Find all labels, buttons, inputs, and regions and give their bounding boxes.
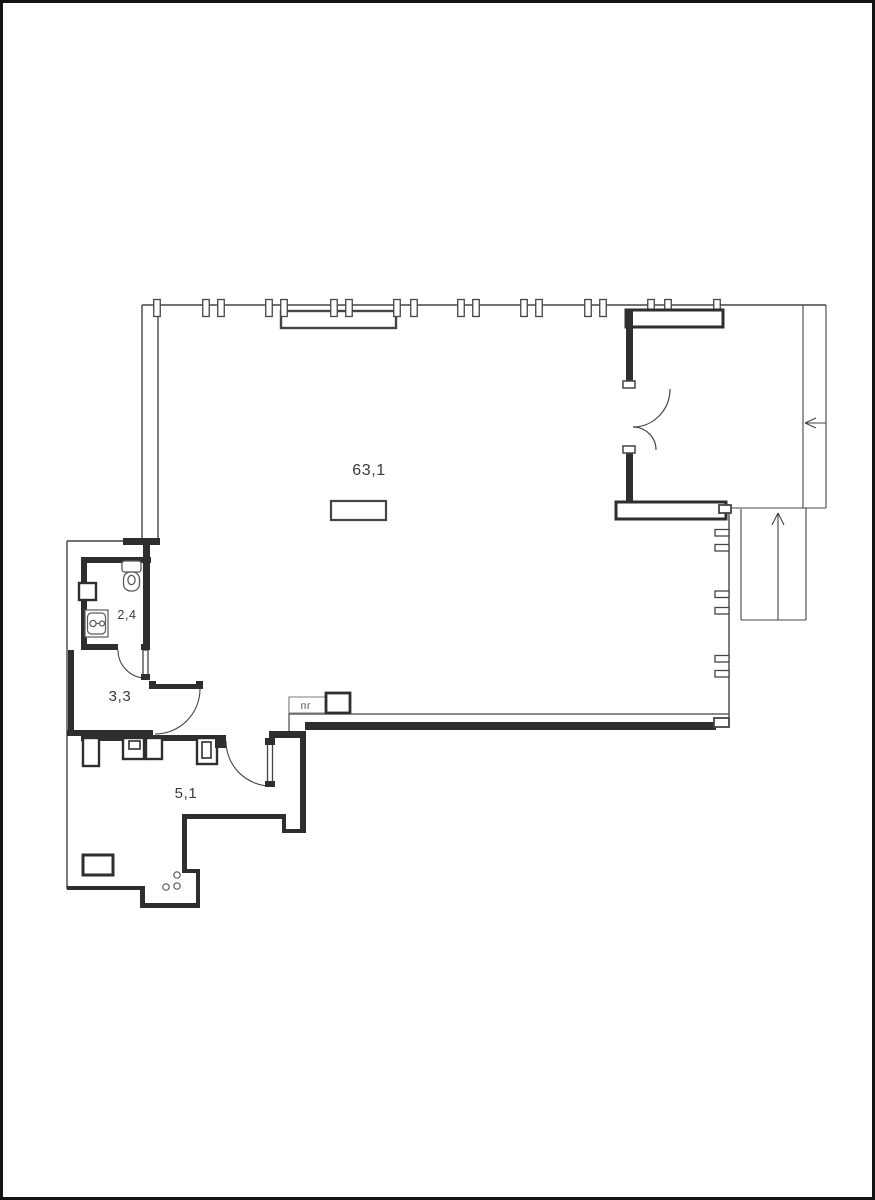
porch-bottom-wall [140, 903, 200, 908]
door-frame-tick [265, 738, 275, 745]
mullion-tick [411, 300, 418, 317]
area-label-bathroom: 2,4 [117, 608, 136, 622]
hall-left-wall [68, 650, 74, 736]
porch-markers [163, 872, 180, 890]
left-arrow-icon [805, 418, 826, 428]
marker-circle [174, 872, 180, 878]
floor-plan-canvas: пг 2,4 [0, 0, 875, 1200]
radiator-tick [715, 591, 729, 598]
toilet-icon [122, 561, 141, 591]
mullion-tick [203, 300, 210, 317]
entry-step-wall-h [282, 829, 306, 833]
mullion-tick [394, 300, 401, 317]
bottom-bar-end-tick [719, 505, 731, 513]
mullion-tick [346, 300, 353, 317]
terrace-door-swing-arc-1 [633, 389, 670, 427]
mullion-tick [536, 300, 543, 317]
main-left-closing-wall [123, 538, 160, 545]
mullion-tick [266, 300, 273, 317]
lower-jamb-cap [623, 446, 635, 453]
bathroom: 2,4 [67, 538, 160, 889]
bathroom-door-leaf [143, 650, 148, 676]
upper-jamb-cap [623, 381, 635, 388]
mullion-tick [600, 300, 607, 317]
entry-door-swing-arc [226, 741, 271, 786]
radiator-tick [715, 530, 729, 537]
porch-wall [67, 886, 145, 890]
closet-niche [83, 738, 99, 766]
door-frame-tick [196, 681, 203, 689]
toilet-bowl-inner [128, 575, 135, 584]
entry-right-wall [300, 731, 306, 833]
balcony [741, 508, 806, 620]
mullion-tick [585, 300, 592, 317]
door-frame-tick [141, 674, 150, 680]
vent-shaft-square [326, 693, 350, 713]
entry-left-wall [182, 818, 187, 873]
door-frame-tick [149, 681, 156, 689]
hall-door-swing-arc [155, 689, 200, 734]
closet-niche-slot [129, 741, 140, 749]
porch-niche [83, 855, 113, 875]
radiator-ticks [715, 530, 729, 678]
area-label-entry-hall: 5,1 [175, 785, 198, 802]
mullion-tick [521, 300, 528, 317]
terrace-door-assembly [616, 310, 731, 519]
bathroom-right-wall [143, 541, 150, 648]
mullion-tick [154, 300, 161, 317]
marker-circle [163, 884, 169, 890]
radiator-tick [715, 608, 729, 615]
bathroom-vent-niche [79, 583, 96, 600]
terrace-door-upper-jamb [626, 310, 633, 387]
porch-wall [140, 888, 145, 908]
bathroom-bottom-wall [81, 644, 118, 650]
mullion-tick [218, 300, 225, 317]
sink-drain [90, 620, 96, 626]
mullion-tick [331, 300, 338, 317]
mullion-tick [473, 300, 480, 317]
corridor-wall [289, 697, 729, 733]
entry-door-leaf [268, 744, 273, 782]
terrace [729, 305, 826, 508]
top-wall-lintel [281, 311, 396, 328]
terrace-door-swing-arc-2 [633, 427, 656, 450]
bathroom-door-swing-arc [118, 650, 146, 678]
mullion-tick [458, 300, 465, 317]
hall-3-3: 3,3 [67, 650, 203, 736]
floor-plan: пг 2,4 [3, 3, 875, 1200]
terrace-door-top-bar [626, 310, 723, 327]
terrace-door-bottom-bar [616, 502, 726, 519]
door-frame-tick [141, 644, 150, 650]
terrace-door-lower-jamb [626, 449, 633, 505]
marker-circle [174, 883, 180, 889]
corridor-wall-end-tick [714, 718, 729, 727]
corridor-wall-band [305, 722, 716, 730]
radiator-tick [715, 545, 729, 552]
porch-wall [196, 869, 200, 908]
toilet-tank [122, 561, 141, 572]
area-label-hall: 3,3 [109, 688, 132, 705]
sink-tap [100, 621, 105, 626]
gas-riser: пг [289, 693, 350, 713]
up-arrow-icon [772, 513, 784, 620]
closet-niche-slot [202, 742, 211, 758]
mullion-tick [281, 300, 288, 317]
door-frame-tick [265, 781, 275, 787]
entry-hall-5-1: 5,1 [67, 731, 306, 908]
sink-icon [85, 610, 108, 637]
closet-niche [146, 738, 162, 759]
closet-wall-end-block [215, 735, 226, 748]
radiator-tick [715, 671, 729, 678]
area-label-main-room: 63,1 [352, 462, 386, 479]
hall-door-leaf [153, 684, 200, 689]
center-column [331, 501, 386, 520]
gas-riser-label: пг [301, 700, 312, 712]
entry-bottom-wall [182, 814, 286, 819]
radiator-tick [715, 656, 729, 663]
